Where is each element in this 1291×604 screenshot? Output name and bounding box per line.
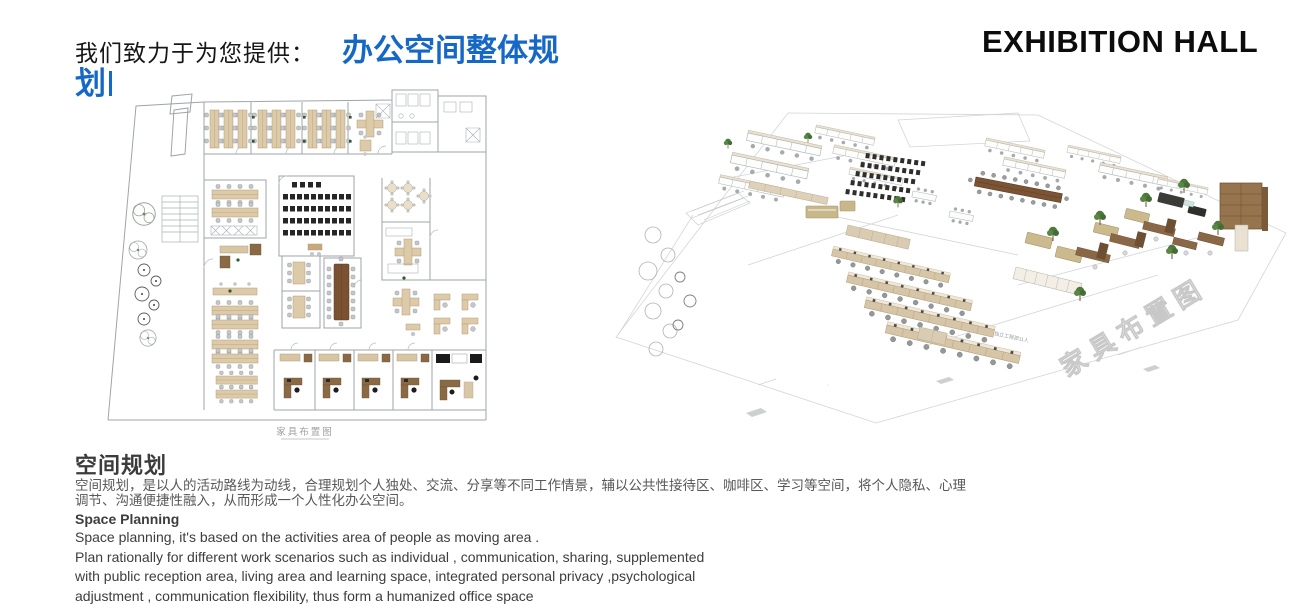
- floorplan-stairs: [162, 196, 198, 242]
- render-floor-lines: [616, 113, 1286, 423]
- exhibition-hall-title: EXHIBITION HALL: [982, 24, 1258, 60]
- floorplan-top-offices: [205, 110, 384, 156]
- render-3d-image: 家具布置图 独立工程部11人: [598, 85, 1290, 445]
- floorplan-right-open: [393, 289, 478, 336]
- en-paragraph-line2: Plan rationally for different work scena…: [75, 548, 704, 568]
- en-section-heading: Space Planning: [75, 511, 179, 527]
- cn-paragraph: 空间规划，是以人的活动路线为动线，合理规划个人独处、交流、分享等不同工作情景，辅…: [75, 479, 966, 509]
- render-lower-rows: [830, 225, 1021, 371]
- floorplan-coffee-area: [384, 180, 431, 279]
- render-garden: [639, 227, 696, 356]
- cn-paragraph-line1: 空间规划，是以人的活动路线为动线，合理规划个人独处、交流、分享等不同工作情景，辅…: [75, 479, 966, 494]
- cn-paragraph-line2: 调节、沟通便捷性融入，从而形成一个人性化办公空间。: [75, 494, 966, 509]
- floorplan-training-room: [283, 182, 351, 256]
- render-area-label: 独立工程部11人: [994, 330, 1030, 344]
- floorplan-bottom-offices: [280, 354, 482, 400]
- en-paragraph-line3: with public reception area, living area …: [75, 567, 704, 587]
- floorplan-bench-clusters: [212, 301, 258, 404]
- render-reception: [806, 201, 855, 218]
- slide: 我们致力于为您提供：办公空间整体规 划 EXHIBITION HALL: [0, 0, 1291, 604]
- floorplan-image: 家具布置图: [86, 88, 523, 445]
- en-paragraph-line4: adjustment , communication flexibility, …: [75, 587, 704, 604]
- floorplan-caption: 家具布置图: [276, 426, 334, 438]
- render-floor-patches: [746, 365, 1160, 417]
- en-paragraph-line1: Space planning, it's based on the activi…: [75, 528, 704, 548]
- headline: 我们致力于为您提供：办公空间整体规: [75, 25, 559, 70]
- floorplan-plants: [129, 203, 161, 346]
- headline-highlight-line1: 办公空间整体规: [342, 33, 559, 69]
- render-small-tables: [911, 186, 974, 226]
- en-paragraph: Space planning, it's based on the activi…: [75, 528, 704, 604]
- floorplan-midleft: [211, 185, 261, 296]
- render-stairs: [686, 191, 750, 225]
- cn-section-heading: 空间规划: [75, 448, 167, 480]
